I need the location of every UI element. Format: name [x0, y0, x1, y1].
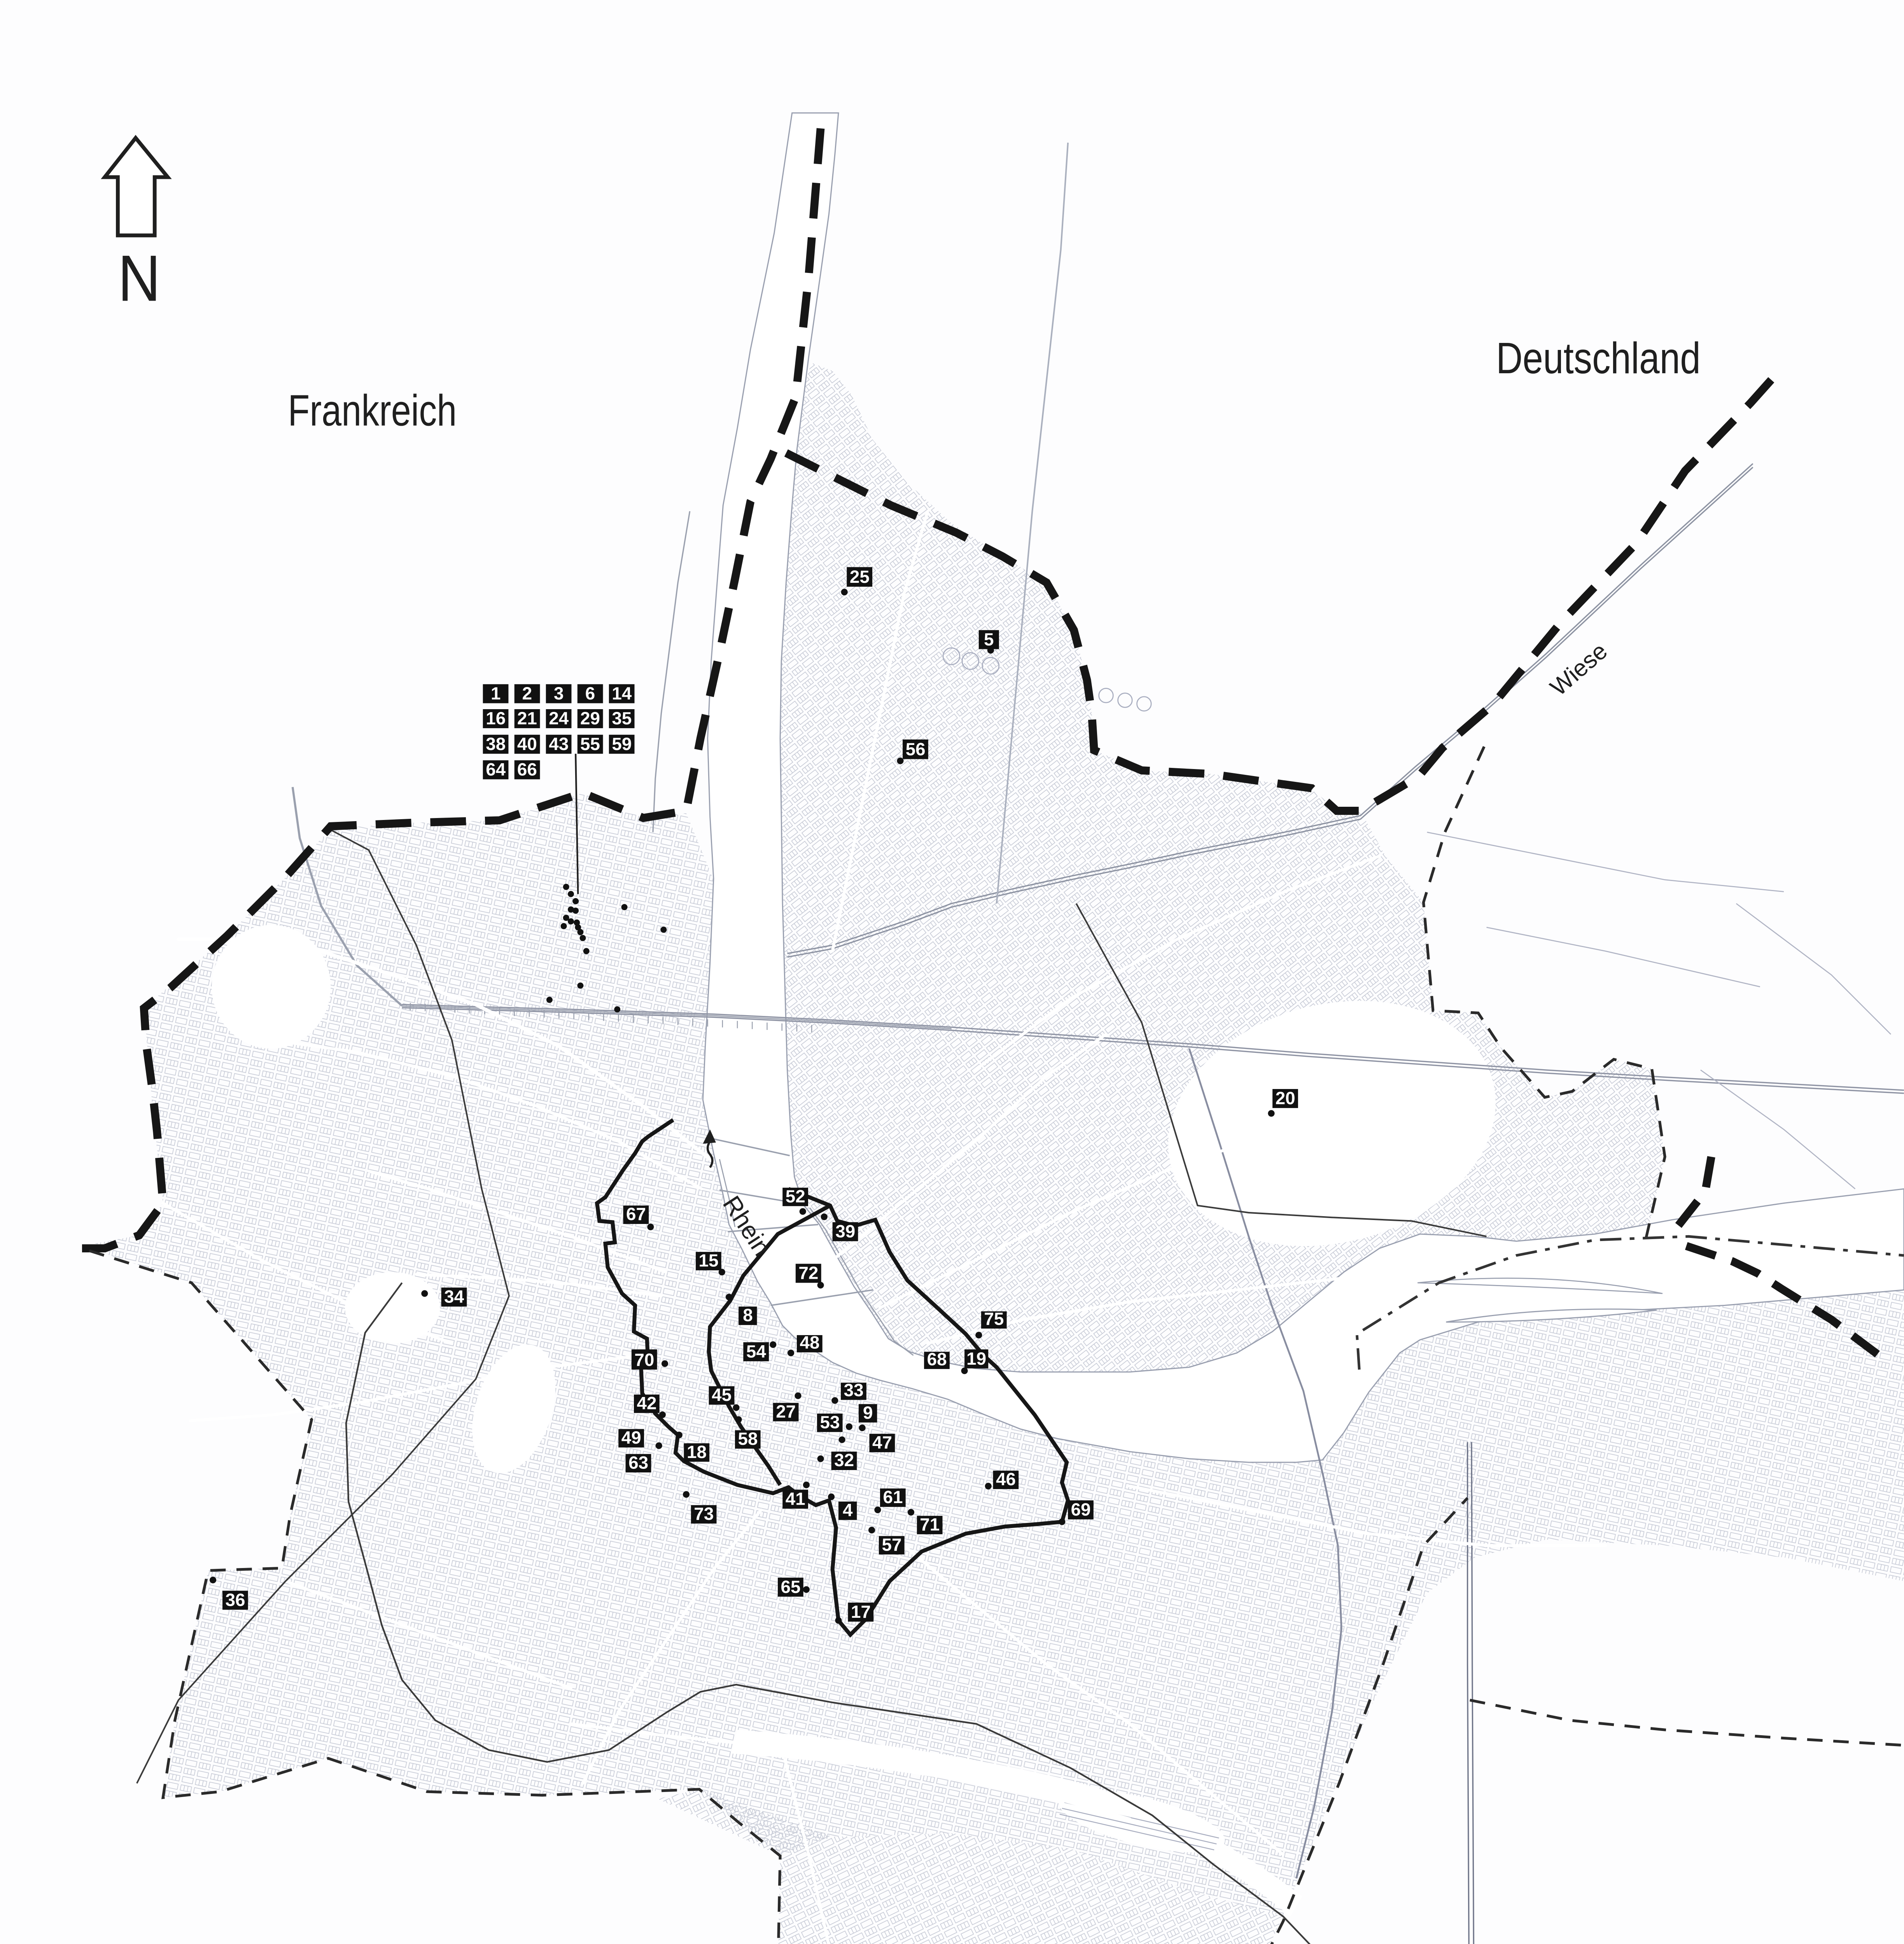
svg-text:Frankreich: Frankreich: [288, 386, 457, 435]
svg-text:58: 58: [738, 1428, 758, 1449]
svg-text:59: 59: [612, 734, 632, 754]
svg-text:19: 19: [966, 1348, 986, 1369]
svg-text:38: 38: [486, 734, 506, 754]
svg-text:25: 25: [850, 566, 870, 587]
svg-text:N: N: [118, 242, 161, 315]
svg-text:56: 56: [906, 739, 926, 759]
svg-text:68: 68: [927, 1349, 947, 1369]
svg-text:39: 39: [835, 1221, 855, 1241]
svg-text:52: 52: [786, 1186, 805, 1206]
svg-text:4: 4: [843, 1500, 853, 1520]
svg-text:5: 5: [984, 629, 994, 649]
svg-text:55: 55: [580, 734, 600, 754]
svg-text:69: 69: [1071, 1499, 1091, 1519]
svg-text:29: 29: [580, 708, 600, 728]
svg-text:49: 49: [621, 1427, 641, 1448]
svg-text:53: 53: [820, 1412, 840, 1432]
svg-text:66: 66: [517, 759, 537, 780]
svg-text:73: 73: [694, 1503, 714, 1524]
svg-text:24: 24: [549, 708, 569, 728]
svg-text:36: 36: [226, 1590, 245, 1610]
svg-text:1: 1: [491, 683, 501, 703]
svg-text:40: 40: [517, 734, 537, 754]
svg-text:6: 6: [585, 683, 595, 703]
svg-text:34: 34: [444, 1287, 464, 1307]
svg-text:17: 17: [851, 1601, 871, 1622]
svg-text:32: 32: [834, 1450, 854, 1470]
svg-text:15: 15: [699, 1250, 719, 1271]
svg-text:45: 45: [712, 1385, 731, 1405]
svg-text:48: 48: [800, 1332, 819, 1352]
svg-text:35: 35: [612, 708, 632, 728]
svg-text:67: 67: [626, 1204, 646, 1224]
svg-text:64: 64: [486, 759, 506, 780]
svg-text:21: 21: [517, 708, 537, 728]
svg-text:20: 20: [1276, 1088, 1295, 1108]
svg-text:57: 57: [882, 1534, 901, 1554]
svg-text:3: 3: [554, 683, 564, 703]
svg-text:18: 18: [687, 1442, 707, 1462]
svg-text:75: 75: [984, 1308, 1004, 1329]
svg-text:43: 43: [549, 734, 569, 754]
svg-text:33: 33: [844, 1380, 864, 1400]
svg-text:2: 2: [522, 683, 532, 703]
svg-text:72: 72: [798, 1263, 818, 1283]
svg-text:16: 16: [486, 708, 506, 728]
svg-text:42: 42: [637, 1393, 657, 1413]
svg-text:47: 47: [872, 1432, 892, 1452]
svg-text:41: 41: [786, 1489, 805, 1509]
svg-text:70: 70: [634, 1350, 654, 1370]
svg-text:27: 27: [776, 1401, 796, 1421]
svg-text:8: 8: [743, 1305, 753, 1325]
svg-text:63: 63: [628, 1452, 648, 1472]
svg-text:46: 46: [996, 1469, 1016, 1489]
svg-text:65: 65: [781, 1577, 801, 1597]
svg-text:Deutschland: Deutschland: [1496, 334, 1701, 383]
svg-text:71: 71: [920, 1514, 940, 1534]
svg-text:61: 61: [883, 1487, 903, 1507]
svg-text:14: 14: [612, 683, 632, 703]
svg-text:54: 54: [746, 1341, 766, 1361]
svg-text:9: 9: [863, 1402, 873, 1423]
